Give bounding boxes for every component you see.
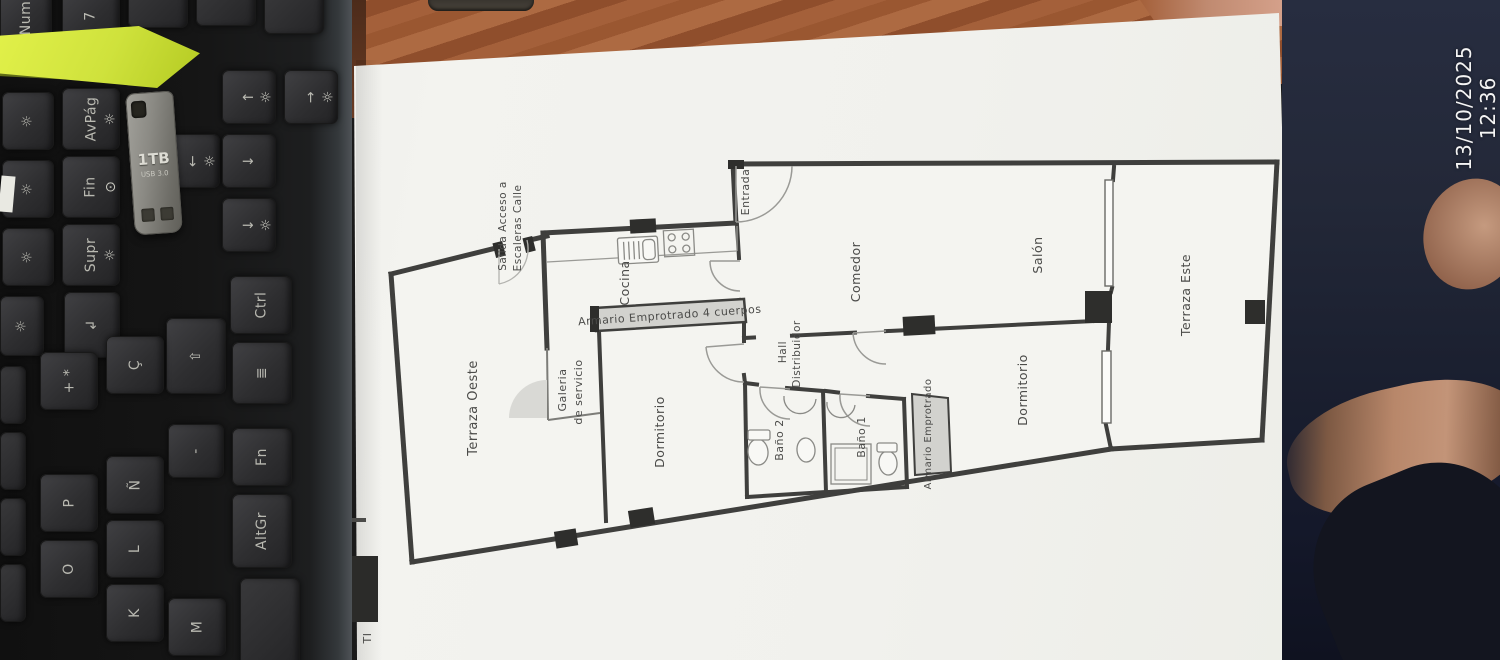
label-comedor: Comedor: [848, 241, 863, 302]
label-bano2: Baño 2: [773, 419, 786, 460]
label-title-partial: TI: [361, 633, 374, 645]
label-galeria-2: de servicio: [572, 359, 585, 424]
label-terraza-oeste: Terraza Oeste: [466, 360, 481, 457]
label-hall-2: Distribuidor: [791, 320, 803, 388]
label-dormitorio-izq: Dormitorio: [652, 396, 667, 468]
label-bano1: Baño 1: [855, 416, 868, 457]
label-galeria-1: Galeria: [556, 369, 569, 412]
label-salida-2: Escaleras Calle: [512, 185, 524, 272]
label-cocina: Cocina: [617, 260, 632, 305]
kitchen-sink: [617, 236, 658, 264]
label-entrada: Entrada: [739, 169, 752, 216]
label-armario-der: Armario Emprotrado: [923, 379, 934, 490]
label-salon: Salón: [1030, 236, 1045, 273]
label-terraza-este: Terraza Este: [1178, 254, 1193, 337]
titleblock-fragment: [352, 556, 378, 622]
floorplan-drawing: Terraza Oeste Salida Acceso a Escaleras …: [0, 0, 1500, 660]
titleblock-dash: [352, 518, 366, 522]
label-hall-1: Hall: [777, 341, 789, 363]
photo-scene: 13/10/2025 12:36 Num 7 ☼ AvPág☼ ☼ Fin⊙ ☼…: [0, 0, 1500, 660]
label-dormitorio-der: Dormitorio: [1015, 354, 1030, 426]
label-salida-1: Salida Acceso a: [497, 181, 509, 271]
